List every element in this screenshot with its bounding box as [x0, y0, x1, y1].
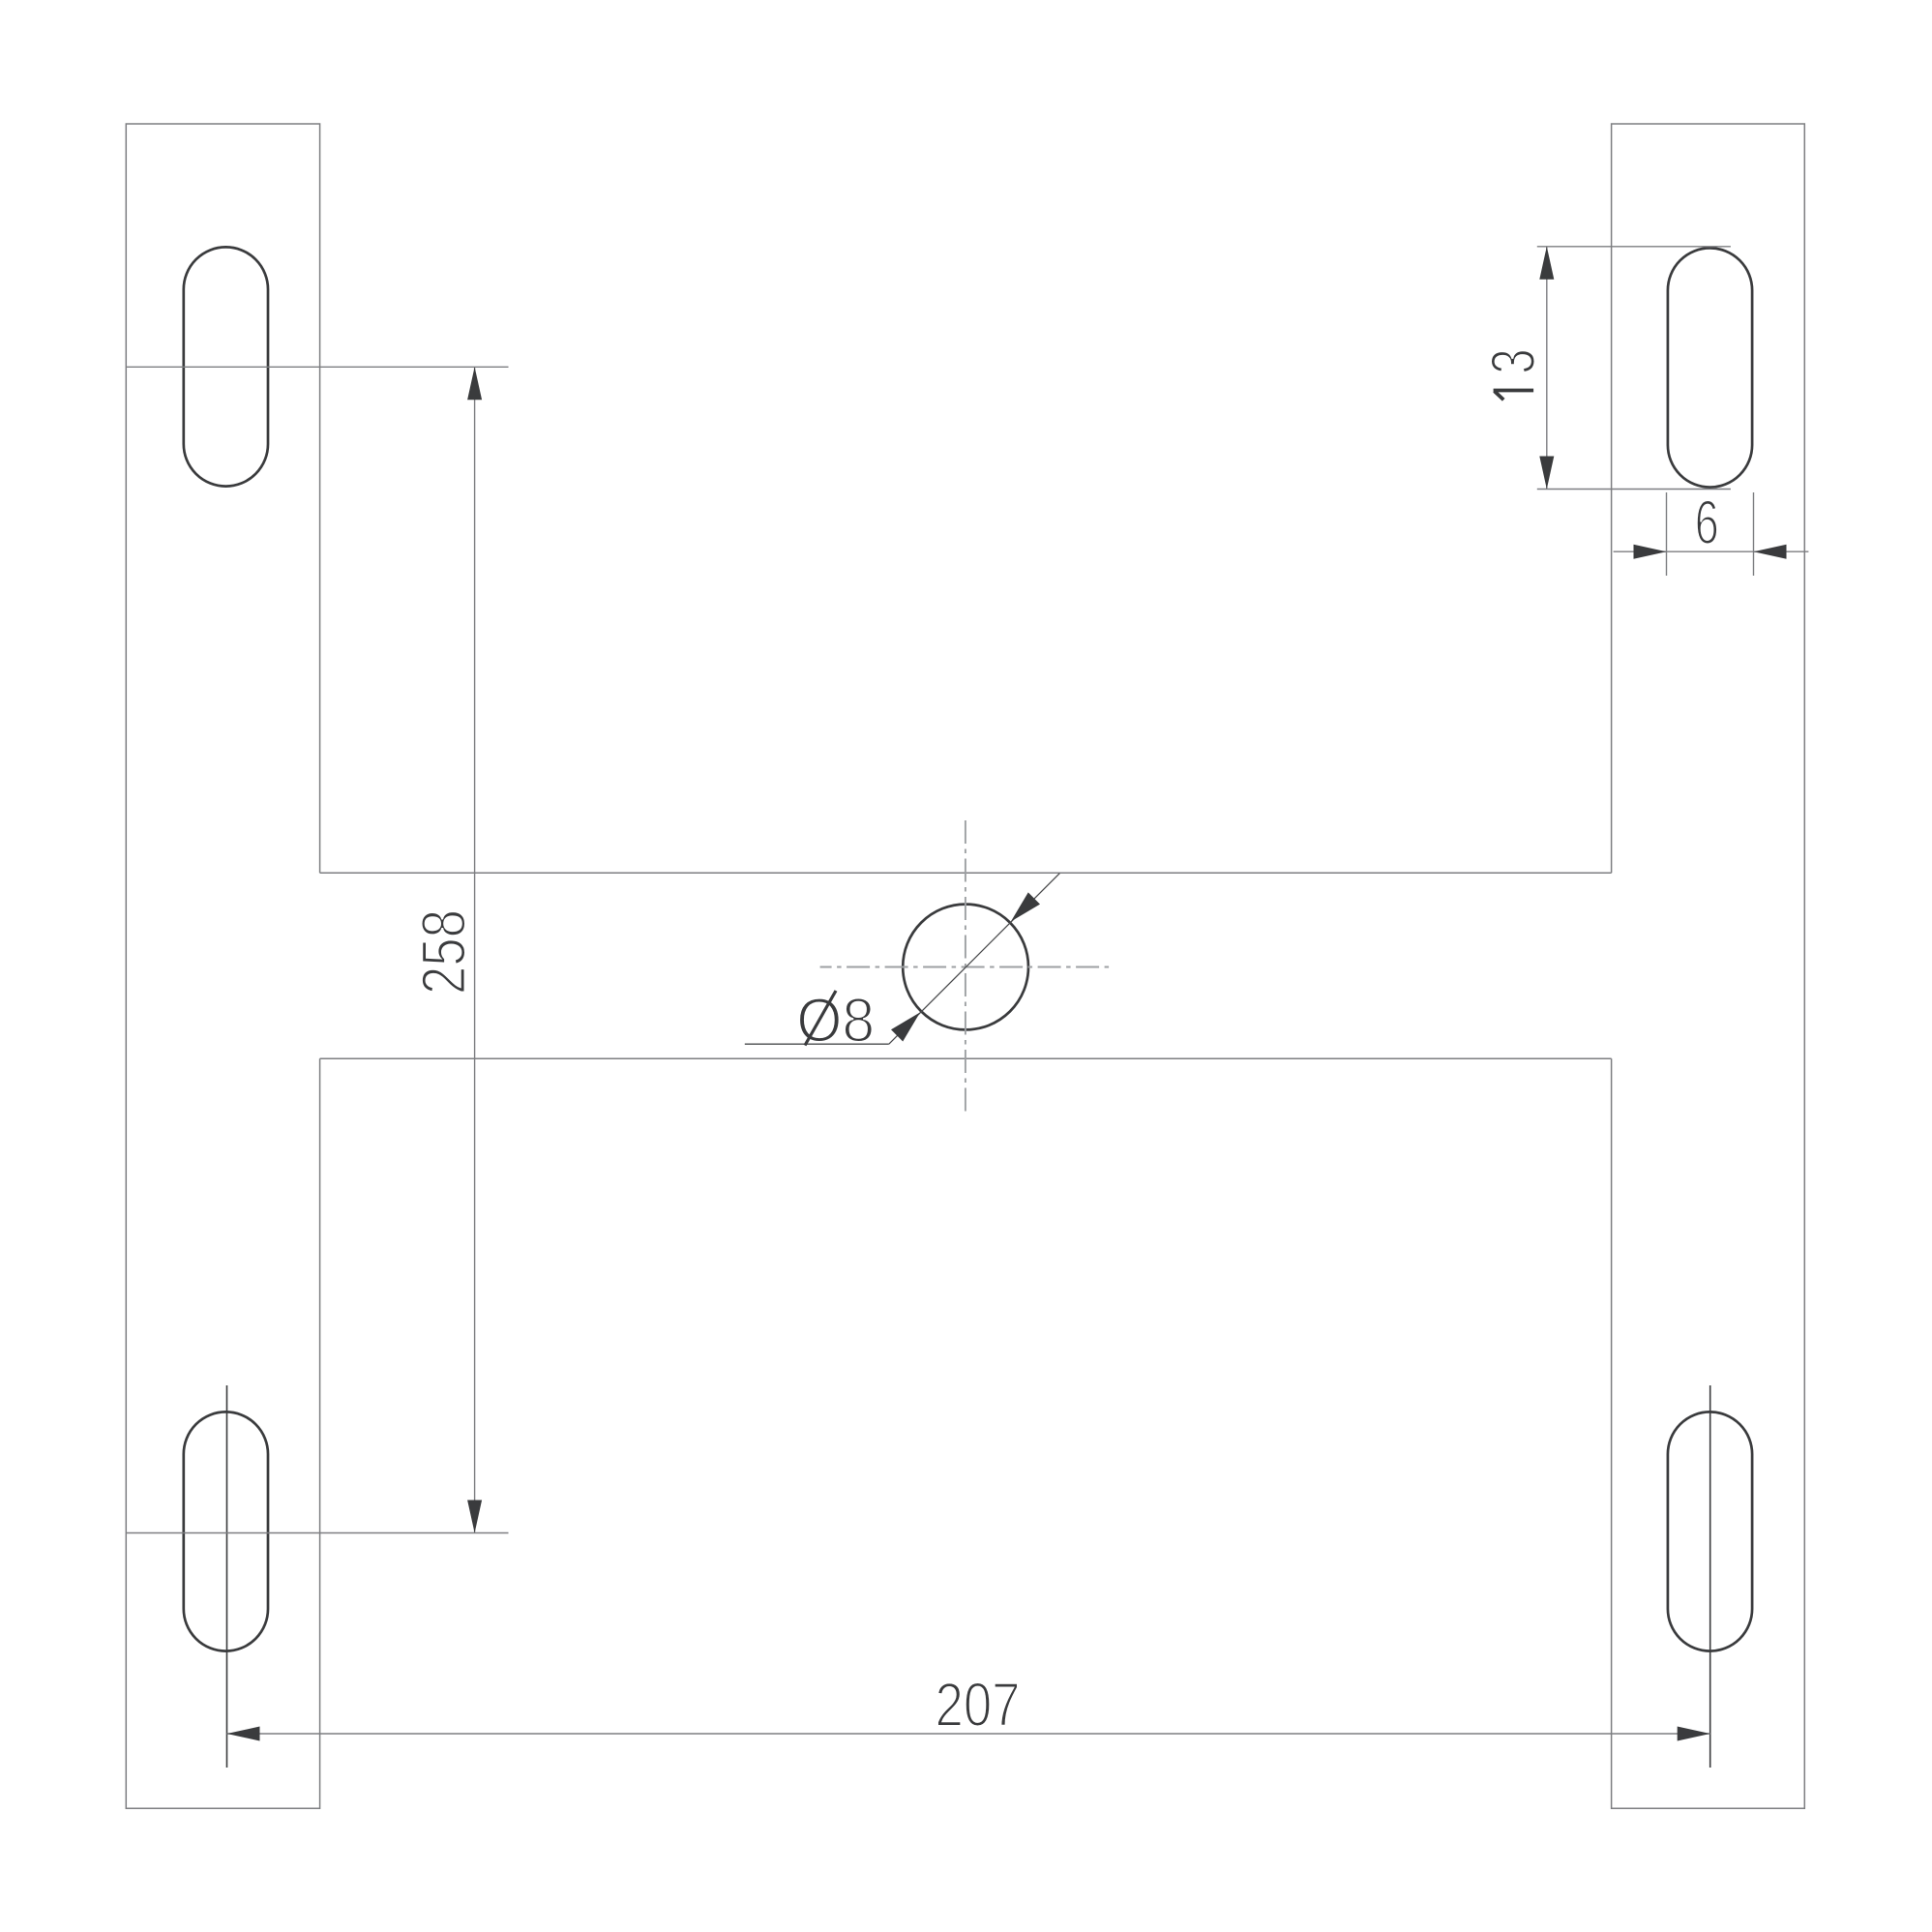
svg-text:258: 258 [409, 909, 479, 995]
svg-text:6: 6 [1695, 488, 1719, 557]
svg-text:O8: O8 [796, 986, 875, 1055]
svg-text:207: 207 [936, 1670, 1021, 1739]
svg-text:3: 3 [1478, 349, 1548, 374]
